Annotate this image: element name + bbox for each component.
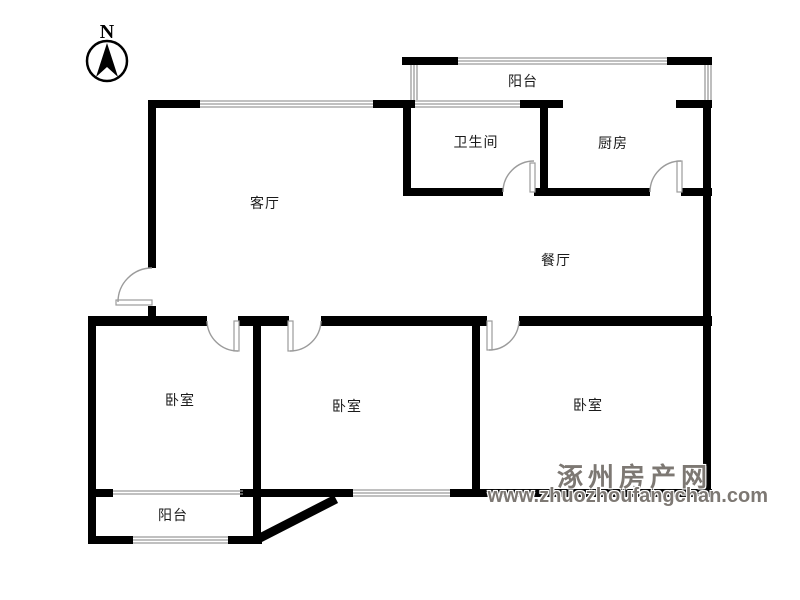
door-arc [118, 268, 152, 302]
north-label: N [100, 21, 115, 43]
bedroom-right-door [487, 321, 519, 350]
wall [402, 57, 458, 65]
wall [540, 100, 548, 196]
watermark-site-url: www.zhuozhoufangchan.com [488, 485, 768, 508]
wall [88, 536, 133, 544]
window [353, 490, 450, 496]
room-label-bedroom-right: 卧室 [573, 395, 603, 415]
room-label-bathroom: 卫生间 [454, 132, 499, 152]
floor-plan: N [0, 0, 800, 600]
door-arc [290, 321, 321, 351]
wall [262, 489, 353, 497]
window [705, 65, 711, 100]
wall [88, 316, 96, 544]
kitchen-door [650, 161, 682, 192]
door-leaf [234, 321, 239, 351]
bedroom-middle-door [288, 321, 321, 351]
door-arc [207, 321, 238, 351]
wall [88, 316, 207, 326]
door-arc [650, 161, 681, 192]
wall [519, 316, 712, 326]
window [200, 101, 373, 107]
wall [403, 188, 503, 196]
floor-plan-drawing: N [0, 0, 800, 600]
wall [88, 489, 113, 497]
window [458, 58, 667, 64]
room-label-balcony-bottom: 阳台 [158, 505, 188, 525]
wall [321, 316, 487, 326]
window [411, 65, 417, 100]
compass-needle [96, 43, 118, 77]
wall [534, 188, 650, 196]
north-compass-icon: N [87, 21, 127, 81]
door-leaf [116, 300, 152, 305]
window [415, 101, 520, 107]
door-leaf [288, 321, 293, 351]
door-leaf [677, 161, 682, 192]
wall [240, 489, 262, 497]
window [113, 491, 243, 494]
diagonal-wall [256, 499, 336, 540]
door-leaf [487, 321, 492, 350]
wall [253, 316, 261, 544]
wall [148, 100, 156, 268]
door-arc [489, 321, 519, 350]
window [133, 537, 228, 543]
room-label-bedroom-middle: 卧室 [332, 396, 362, 416]
door-arc [503, 161, 534, 192]
room-label-dining-room: 餐厅 [541, 250, 571, 270]
room-label-kitchen: 厨房 [598, 133, 628, 153]
bathroom-door [503, 161, 535, 192]
wall [667, 57, 712, 65]
wall [403, 100, 411, 196]
room-label-bedroom-left: 卧室 [165, 390, 195, 410]
entry-door [116, 268, 152, 305]
door-leaf [530, 163, 535, 192]
room-label-balcony-top: 阳台 [508, 71, 538, 91]
bedroom-left-door [207, 321, 239, 351]
room-label-living-room: 客厅 [250, 193, 280, 213]
wall [238, 316, 289, 326]
wall [703, 100, 711, 496]
wall [681, 188, 712, 196]
wall [472, 316, 480, 496]
